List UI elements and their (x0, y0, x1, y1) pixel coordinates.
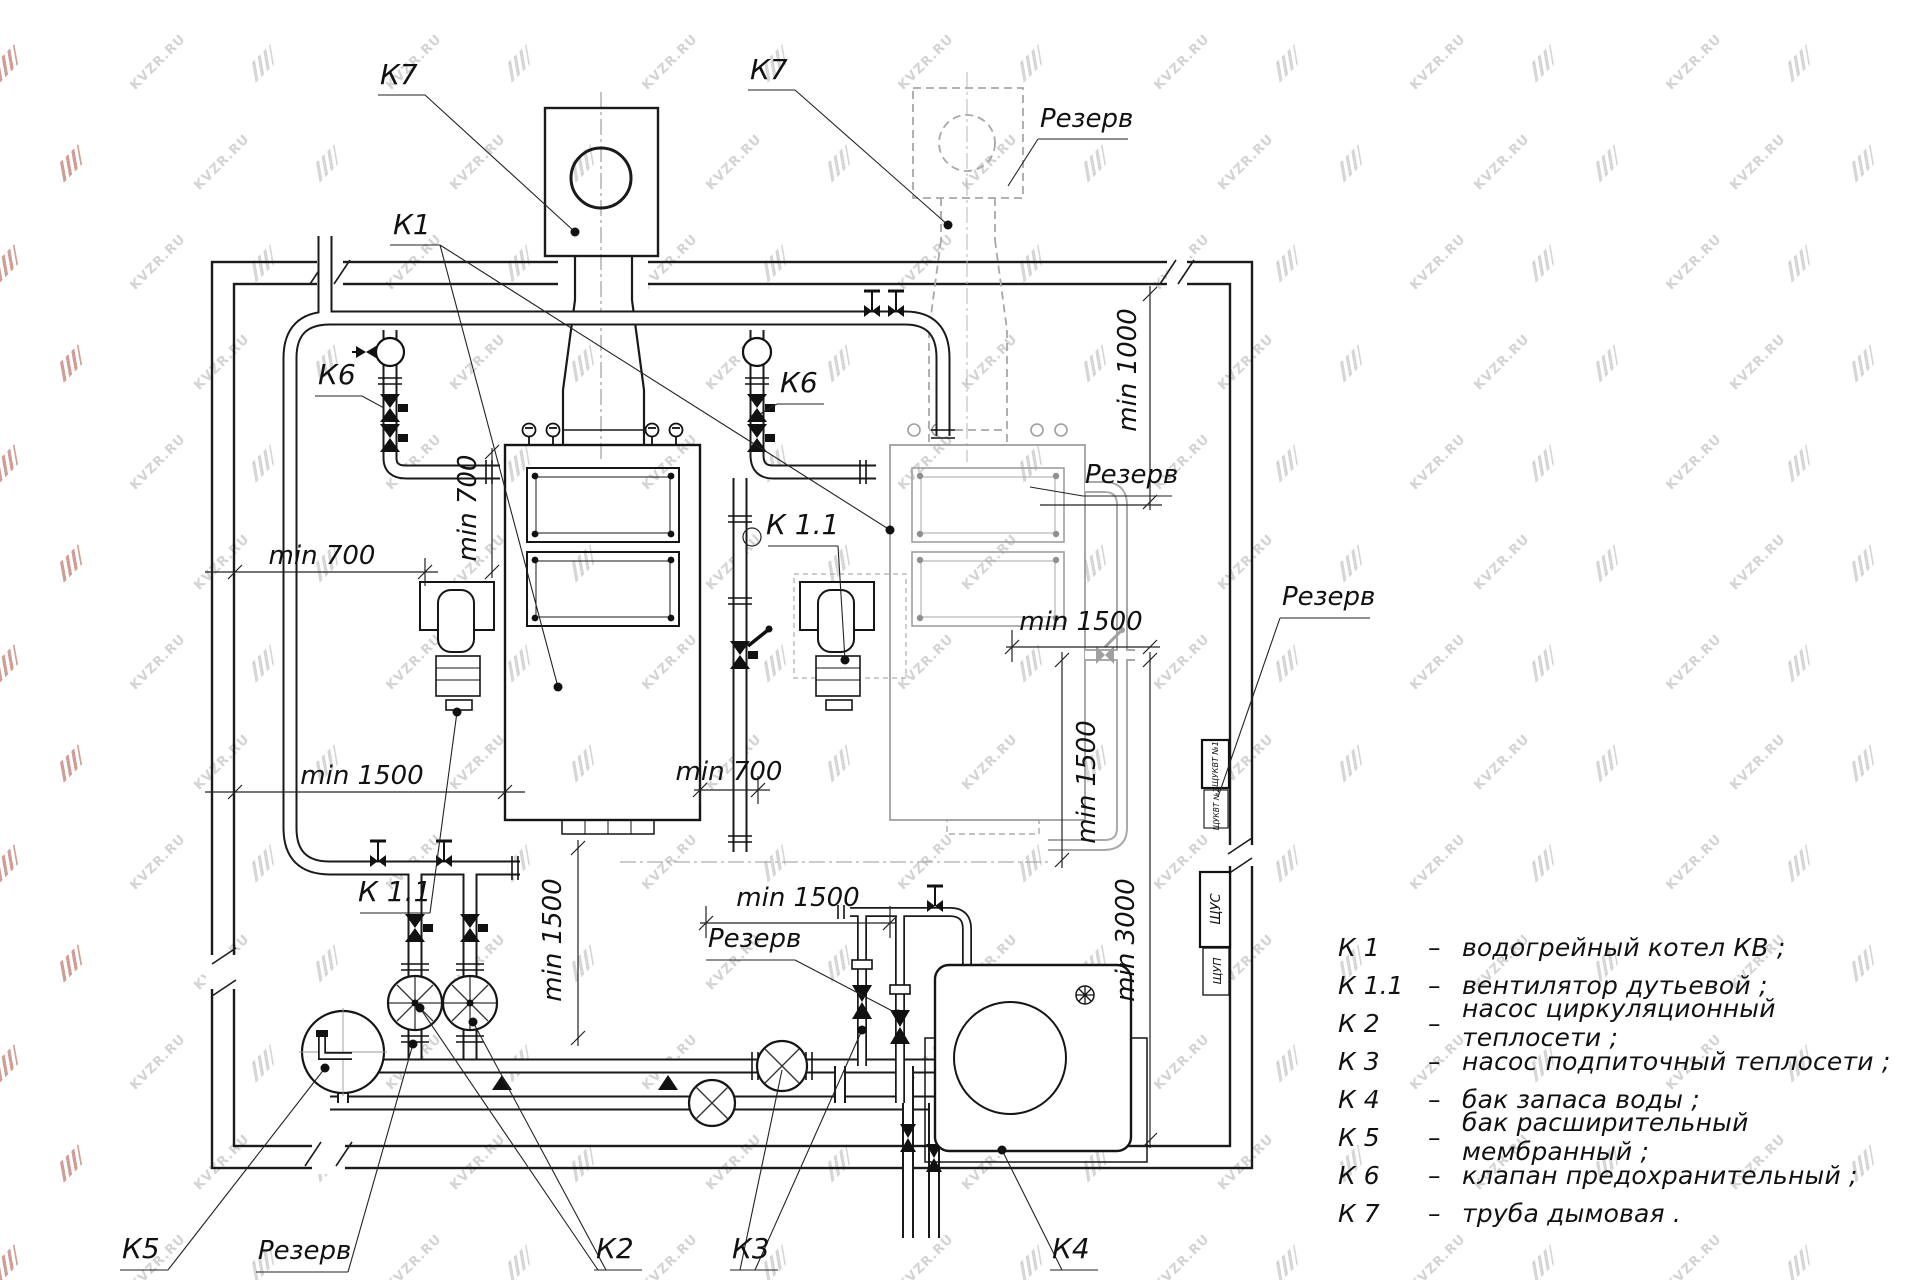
dim-min3000: min 3000 (1111, 878, 1141, 1001)
cabinet-label: ЩУП (1211, 957, 1224, 984)
dim-min700-left: min 700 (269, 541, 376, 571)
cabinet-label: ЩУКВТ №1 (1211, 741, 1220, 787)
boiler-k2-dots (917, 473, 1059, 621)
legend-code: К 6 (1338, 1161, 1428, 1190)
legend-row: К 7–труба дымовая . (1338, 1194, 1913, 1232)
label-k6-left: К6 (318, 358, 356, 391)
support (658, 1075, 678, 1090)
label-k3: К3 (732, 1232, 770, 1265)
dim-min1500-right: min 1500 (1019, 607, 1142, 637)
label-k11-mid: К 1.1 (766, 508, 839, 541)
legend: К 1–водогрейный котел КВ ; К 1.1–вентиля… (1338, 928, 1913, 1232)
label-rezerv-right: Резерв (1282, 582, 1375, 612)
legend-dash: – (1428, 1047, 1462, 1076)
flange-circle (376, 338, 404, 366)
fan-k11-right (800, 582, 874, 710)
legend-code: К 7 (1338, 1199, 1428, 1228)
label-k11-left: К 1.1 (358, 875, 431, 908)
dim-min1500-mid: min 1500 (736, 883, 859, 913)
legend-dash: – (1428, 1085, 1462, 1114)
legend-row: К 3–насос подпиточный теплосети ; (1338, 1042, 1913, 1080)
legend-dash: – (1428, 1123, 1462, 1152)
legend-code: К 5 (1338, 1123, 1428, 1152)
legend-desc: насос подпиточный теплосети ; (1462, 1047, 1913, 1076)
legend-row: К 6–клапан предохранительный ; (1338, 1156, 1913, 1194)
label-rezerv-mid: Резерв (708, 924, 801, 954)
legend-code: К 4 (1338, 1085, 1428, 1114)
legend-desc: труба дымовая . (1462, 1199, 1913, 1228)
label-k1: К1 (393, 208, 431, 241)
cabinet-label: ЩУС (1209, 892, 1224, 924)
dim-min700-mid: min 700 (676, 757, 783, 787)
tank-k5 (299, 1008, 387, 1096)
legend-desc: насос циркуляционный теплосети ; (1462, 994, 1913, 1052)
bolt (646, 424, 659, 446)
legend-dash: – (1428, 1009, 1462, 1038)
boiler-k1 (505, 445, 700, 834)
legend-dash: – (1428, 971, 1462, 1000)
legend-row: К 5–бак расширительный мембранный ; (1338, 1118, 1913, 1156)
label-k7-right: К7 (750, 53, 788, 86)
boiler-k2-reserve (890, 445, 1085, 834)
label-k4: К4 (1052, 1232, 1090, 1265)
legend-desc: бак расширительный мембранный ; (1462, 1108, 1913, 1166)
legend-desc: клапан предохранительный ; (1462, 1161, 1913, 1190)
legend-dash: – (1428, 933, 1462, 962)
flange-circle (743, 338, 771, 366)
dim-min1500-vert-left: min 1500 (538, 878, 568, 1001)
dim-min700-vertical: min 700 (453, 455, 483, 562)
legend-code: К 1.1 (1338, 971, 1428, 1000)
boiler-k1-dots (532, 473, 675, 622)
bolt (547, 424, 560, 446)
chimney-k7-2-reserve (913, 88, 1023, 446)
small-valve (352, 346, 376, 358)
label-k7-left: К7 (380, 58, 418, 91)
label-k6-right: К6 (780, 366, 818, 399)
bolt (523, 424, 536, 446)
pump-k3-group (689, 1041, 807, 1126)
legend-row: К 1–водогрейный котел КВ ; (1338, 928, 1913, 966)
legend-dash: – (1428, 1199, 1462, 1228)
label-rezerv-boiler2: Резерв (1085, 460, 1178, 490)
legend-desc: водогрейный котел КВ ; (1462, 933, 1913, 962)
legend-row: К 2–насос циркуляционный теплосети ; (1338, 1004, 1913, 1042)
fan-k11-left (420, 582, 494, 710)
pump-k2-group (388, 914, 497, 1030)
label-k2: К2 (596, 1232, 634, 1265)
dim-min1500-left: min 1500 (300, 761, 423, 791)
dim-min1500-vert-right: min 1500 (1072, 720, 1102, 843)
label-k5: К5 (122, 1232, 160, 1265)
cabinets: ЩУКВТ №1 ЩУКВТ №2 ЩУС ЩУП (1200, 740, 1230, 995)
legend-code: К 2 (1338, 1009, 1428, 1038)
legend-code: К 3 (1338, 1047, 1428, 1076)
label-rezerv-top: Резерв (1040, 104, 1133, 134)
dim-min1000: min 1000 (1113, 308, 1143, 431)
legend-code: К 1 (1338, 933, 1428, 962)
label-rezerv-bottom: Резерв (258, 1236, 351, 1266)
boiler-room-plan: KVZR.RUKVZR.RUKVZR.RUKVZR.RUKVZR.RUKVZR.… (0, 0, 1920, 1280)
bolt (670, 424, 683, 446)
support (492, 1075, 512, 1090)
legend-dash: – (1428, 1161, 1462, 1190)
